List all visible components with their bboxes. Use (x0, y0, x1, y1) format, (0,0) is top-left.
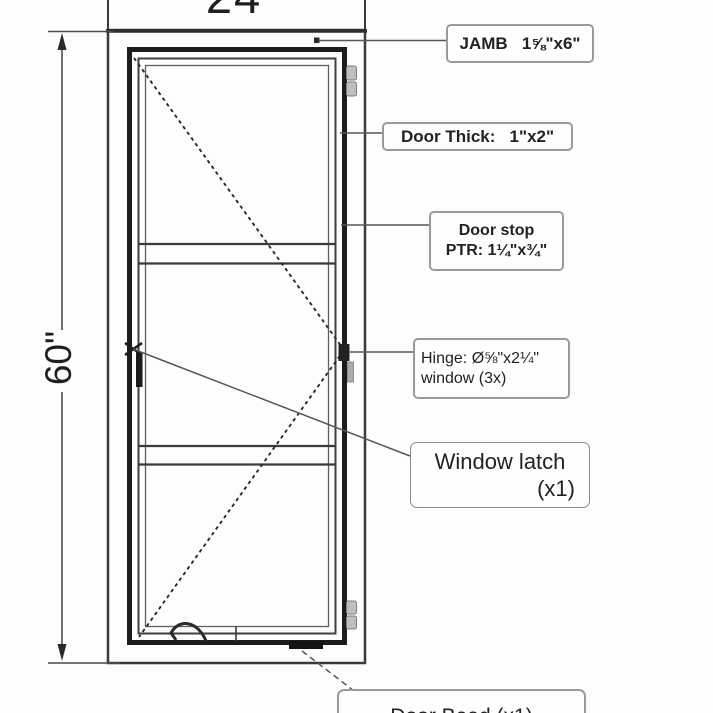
callout-hinge: Hinge: Ø⅝"x2¼" window (3x) (413, 338, 570, 399)
dimension-arrow-down-icon (58, 644, 67, 661)
door-swing-lines (134, 58, 344, 637)
hinge-bottom-icon (347, 601, 357, 629)
width-dimension-label: 24 (186, 0, 282, 20)
callout-door-stop-line2: PTR: 1¼"x¾" (446, 241, 547, 261)
window-rails (138, 244, 336, 465)
callout-jamb-text: JAMB 1⅝"x6" (459, 33, 580, 54)
callout-door-stop: Door stop PTR: 1¼"x¾" (429, 211, 564, 271)
callout-jamb: JAMB 1⅝"x6" (446, 24, 594, 63)
dimension-arrow-up-icon (58, 33, 67, 50)
callout-door-thickness-text: Door Thick: 1"x2" (401, 126, 554, 147)
callout-door-bead: Door Bead (x1) (337, 689, 586, 713)
hinge-top-icon (347, 66, 357, 96)
jamb-frame-outline (108, 30, 365, 663)
callout-door-bead-text: Door Bead (x1) (390, 704, 532, 713)
door-elevation-drawing (0, 0, 713, 713)
callout-hinge-line2: window (3x) (415, 369, 568, 389)
door-stop-outline (139, 59, 336, 634)
callout-door-thickness: Door Thick: 1"x2" (382, 122, 573, 151)
callout-door-stop-line1: Door stop (459, 221, 535, 241)
door-bead-block (289, 641, 323, 649)
door-leaf-outline (130, 50, 345, 643)
callout-window-latch: Window latch (x1) (410, 442, 590, 508)
technical-drawing-canvas: 24 60" JAMB 1⅝"x6" Door Thick: 1"x2" Doo… (0, 0, 713, 713)
glazing-outline (146, 66, 329, 627)
height-dimension-label: 60" (39, 301, 79, 415)
callout-hinge-line1: Hinge: Ø⅝"x2¼" (415, 349, 568, 369)
callout-window-latch-line2: (x1) (411, 475, 589, 503)
callout-window-latch-line1: Window latch (411, 448, 589, 476)
